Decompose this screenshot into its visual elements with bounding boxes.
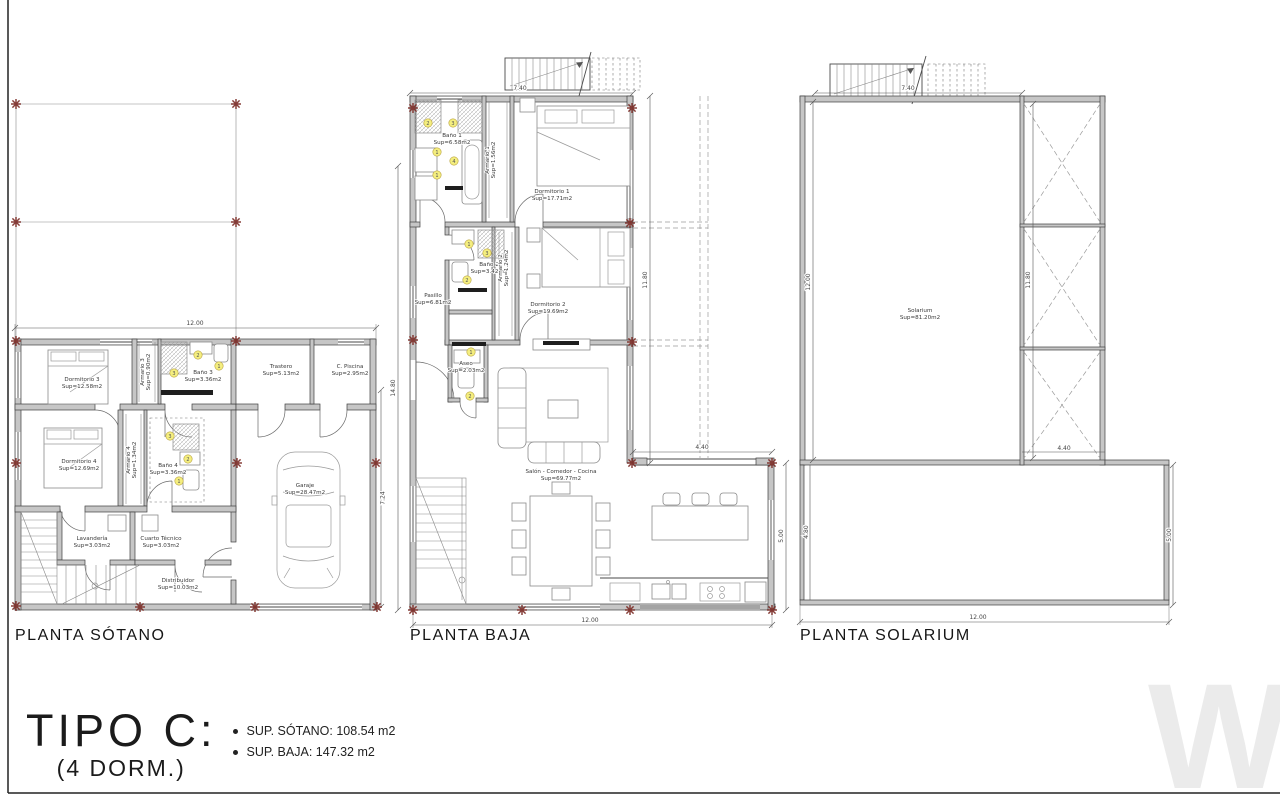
svg-text:1: 1 xyxy=(435,173,438,179)
fixture-badge: 4 xyxy=(450,157,458,165)
type-label: TIPO C: xyxy=(26,708,217,753)
grid-marker-icon xyxy=(232,458,242,468)
room-label: Baño 1 xyxy=(442,133,462,139)
grid-marker-icon xyxy=(372,602,382,612)
room-label: Lavandería xyxy=(76,535,107,542)
room-label: Baño 2 xyxy=(479,262,499,268)
kitchen-island-icon xyxy=(652,493,748,540)
baja-stair-icon xyxy=(416,478,466,604)
room-area: Sup=1.56m2 xyxy=(491,142,497,179)
grid-marker-icon xyxy=(11,217,21,227)
svg-text:1: 1 xyxy=(469,350,472,356)
room-area: Sup=1.24m2 xyxy=(504,250,510,287)
fixture-badge: 1 xyxy=(175,477,183,485)
room-label: Dormitorio 2 xyxy=(530,302,565,308)
grid-marker-icon xyxy=(625,218,635,228)
grid-marker-icon xyxy=(625,605,635,615)
dim-baja-right: 11.80 xyxy=(642,271,649,288)
room-label: Baño 3 xyxy=(193,370,213,376)
room-area: Sup=12.69m2 xyxy=(59,466,99,472)
svg-text:3: 3 xyxy=(485,251,488,257)
kitchen-counter-icon xyxy=(600,578,768,602)
grid-marker-icon xyxy=(250,602,260,612)
plan-baja: 7.40 11.80 4.40 5.00 12.00 14.80 xyxy=(390,52,789,644)
svg-text:1: 1 xyxy=(467,242,470,248)
grid-marker-icon xyxy=(135,602,145,612)
room-area: Sup=69.77m2 xyxy=(541,476,581,482)
room-area: Sup=5.13m2 xyxy=(263,371,300,377)
dim-baja-wing-height: 5.00 xyxy=(778,529,785,543)
grid-marker-icon xyxy=(371,458,381,468)
sotano-projection xyxy=(16,103,236,339)
room-area: Sup=10.03m2 xyxy=(158,585,198,591)
area-baja-item: SUP. BAJA: 147.32 m2 xyxy=(233,745,396,759)
room-area: Sup=19.69m2 xyxy=(528,309,568,315)
room-label: Garaje xyxy=(296,483,315,489)
room-area: Sup=1.34m2 xyxy=(132,442,138,479)
plan-solarium: 7.40 12.00 11.80 4.40 4.80 5.00 12.00 xyxy=(797,56,1176,644)
svg-text:1: 1 xyxy=(177,479,180,485)
dim-solarium-bottom: 12.00 xyxy=(969,614,986,621)
room-label: Pasillo xyxy=(424,293,442,299)
room-label: C. Piscina xyxy=(337,364,364,370)
room-area: Sup=12.58m2 xyxy=(62,384,102,390)
fixture-badge: 2 xyxy=(184,455,192,463)
svg-text:1: 1 xyxy=(435,150,438,156)
room-area: Sup=3.03m2 xyxy=(143,543,180,549)
room-area: Sup=3.03m2 xyxy=(74,543,111,549)
room-label: Trastero xyxy=(269,364,293,370)
svg-text:2: 2 xyxy=(186,457,189,463)
grid-marker-icon xyxy=(11,336,21,346)
room-area: Sup=81.20m2 xyxy=(900,315,940,321)
grid-marker-icon xyxy=(231,217,241,227)
room-area: Sup=2.03m2 xyxy=(448,368,485,374)
grid-marker-icon xyxy=(11,99,21,109)
title-block: TIPO C: (4 DORM.) SUP. SÓTANO: 108.54 m2… xyxy=(26,708,395,782)
sheet-frame xyxy=(8,0,1280,793)
grid-marker-icon xyxy=(627,103,637,113)
area-sotano-item: SUP. SÓTANO: 108.54 m2 xyxy=(233,724,396,738)
dim-baja-left: 14.80 xyxy=(390,379,397,396)
dim-baja-bottom: 12.00 xyxy=(581,617,598,624)
room-label: Distribuidor xyxy=(162,578,195,584)
fixture-badge: 2 xyxy=(463,276,471,284)
fixture-badge: 3 xyxy=(170,369,178,377)
fixture-badge: 2 xyxy=(424,119,432,127)
fixture-badge: 3 xyxy=(483,249,491,257)
area-summary-list: SUP. SÓTANO: 108.54 m2 SUP. BAJA: 147.32… xyxy=(233,724,396,766)
bed-icon xyxy=(520,98,630,186)
svg-text:2: 2 xyxy=(196,353,199,359)
fixture-badge: 1 xyxy=(433,171,441,179)
svg-text:3: 3 xyxy=(168,434,171,440)
dim-sotano-width: 12.00 xyxy=(186,320,203,327)
grid-marker-icon xyxy=(627,337,637,347)
room-label: Baño 4 xyxy=(158,463,178,469)
solarium-dimensions: 7.40 12.00 11.80 4.40 4.80 5.00 12.00 xyxy=(797,85,1176,625)
floorplan-sheet: W xyxy=(0,0,1280,800)
dim-solarium-terrace-left: 4.80 xyxy=(803,525,810,539)
dorm-count-label: (4 DORM.) xyxy=(26,755,217,782)
svg-text:1: 1 xyxy=(217,364,220,370)
dim-solarium-top: 7.40 xyxy=(901,85,915,92)
grid-marker-icon xyxy=(627,458,637,468)
fixture-badge: 2 xyxy=(466,392,474,400)
room-area: Sup=6.81m2 xyxy=(415,300,452,306)
room-label: Solarium xyxy=(908,308,933,314)
car-icon xyxy=(272,452,345,588)
dim-baja-wing-width: 4.40 xyxy=(695,444,709,451)
watermark: W xyxy=(1148,652,1280,800)
dim-solarium-strip-width: 4.40 xyxy=(1057,445,1071,452)
svg-text:2: 2 xyxy=(426,121,429,127)
floorplan-drawing: W xyxy=(0,0,1280,800)
dim-baja-top: 7.40 xyxy=(513,85,527,92)
grid-marker-icon xyxy=(231,99,241,109)
room-area: Sup=3.36m2 xyxy=(185,377,222,383)
solarium-room-labels: Solarium Sup=81.20m2 xyxy=(900,308,940,321)
room-label: Dormitorio 3 xyxy=(64,377,100,383)
room-label: Aseo xyxy=(459,361,473,367)
room-label: Dormitorio 1 xyxy=(534,189,570,195)
room-area: Sup=3.36m2 xyxy=(150,470,187,476)
grid-marker-icon xyxy=(767,458,777,468)
plan-sotano: 12.00 7.24 Dormitorio 3 Sup=12.58m2 Arma… xyxy=(12,103,387,644)
plan-title-solarium: PLANTA SOLARIUM xyxy=(800,627,971,644)
solarium-walls xyxy=(800,96,1169,605)
dim-solarium-left: 12.00 xyxy=(805,273,812,290)
plan-title-baja: PLANTA BAJA xyxy=(410,627,531,644)
fixture-badge: 1 xyxy=(465,240,473,248)
fixture-badge: 1 xyxy=(467,348,475,356)
bed-icon xyxy=(44,428,102,488)
room-area: Sup=6.58m2 xyxy=(434,140,471,146)
fixture-badge: 2 xyxy=(194,351,202,359)
dining-table-icon xyxy=(512,482,610,600)
room-area: Sup=0.90m2 xyxy=(146,354,152,391)
grid-marker-icon xyxy=(11,601,21,611)
fixture-badge: 1 xyxy=(433,148,441,156)
fixture-badge: 1 xyxy=(215,362,223,370)
room-label: Salón - Comedor - Cocina xyxy=(525,468,596,475)
dim-solarium-inner-right: 11.80 xyxy=(1025,271,1032,288)
grid-marker-icon xyxy=(231,336,241,346)
grid-marker-icon xyxy=(517,605,527,615)
svg-text:3: 3 xyxy=(451,121,454,127)
fixture-badge: 3 xyxy=(449,119,457,127)
living-room-furniture xyxy=(498,339,608,463)
room-area: Sup=17.71m2 xyxy=(532,196,572,202)
room-label: Dormitorio 4 xyxy=(61,459,97,465)
room-area: Sup=28.47m2 xyxy=(285,490,325,496)
bed-icon xyxy=(527,228,630,288)
svg-text:2: 2 xyxy=(468,394,471,400)
svg-text:4: 4 xyxy=(452,159,455,165)
fixture-badge: 3 xyxy=(166,432,174,440)
grid-marker-icon xyxy=(767,605,777,615)
room-area: Sup=2.95m2 xyxy=(332,371,369,377)
svg-text:2: 2 xyxy=(465,278,468,284)
grid-marker-icon xyxy=(408,103,418,113)
dim-solarium-terrace-right: 5.00 xyxy=(1166,528,1173,542)
plan-title-sotano: PLANTA SÓTANO xyxy=(15,625,166,644)
grid-marker-icon xyxy=(11,458,21,468)
svg-text:3: 3 xyxy=(172,371,175,377)
dim-sotano-right: 7.24 xyxy=(380,491,387,505)
grid-marker-icon xyxy=(408,605,418,615)
room-label: Cuarto Técnico xyxy=(140,535,182,542)
grid-marker-icon xyxy=(408,335,418,345)
